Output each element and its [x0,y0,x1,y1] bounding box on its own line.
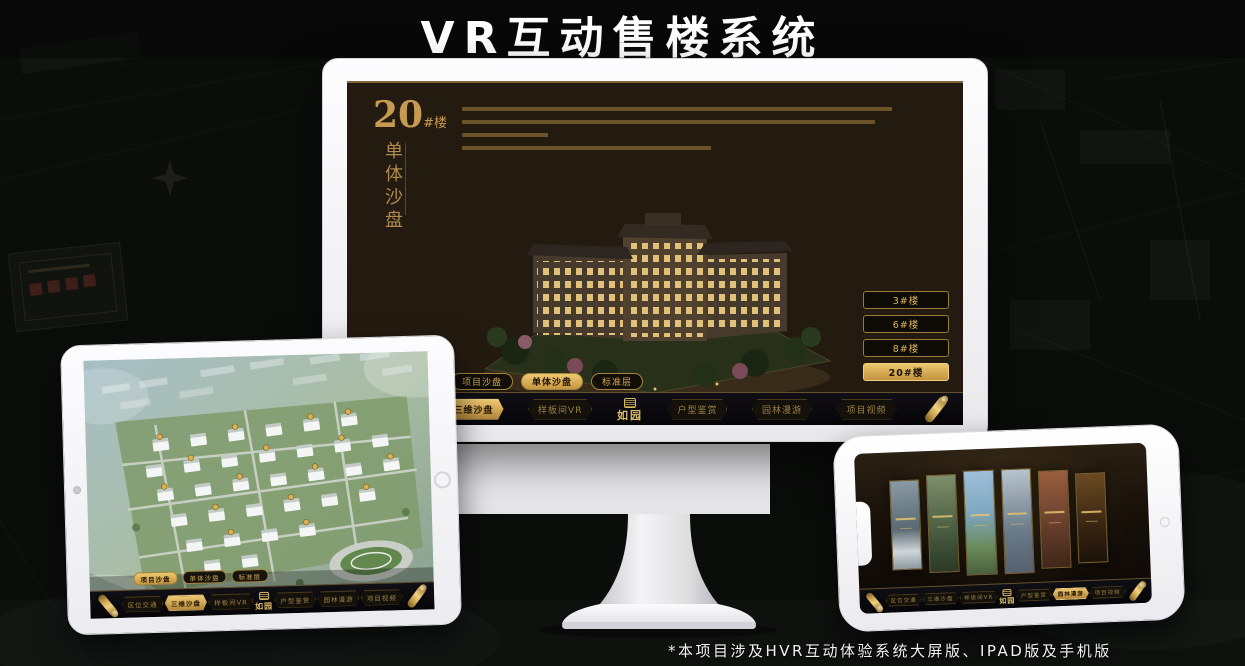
promo-canvas: VR互动售楼系统 20#楼 单体沙盘 [0,0,1245,666]
tablet-tab-project-sandbox[interactable]: 项目沙盘 [133,571,177,585]
tablet-nav-project-video[interactable]: 项目视频 [361,589,403,606]
building-number: 20#楼 [373,97,447,133]
nav-item-garden-roam[interactable]: 园林漫游 [752,399,812,420]
footnote-text: *本项目涉及HVR互动体验系统大屏版、IPAD版及手机版 [668,640,1112,661]
phone-nav-bar: 区位交通 三维沙盘 样板间VR 如园 户型鉴赏 园林漫游 项目视频 [859,578,1152,614]
desktop-view-tabs: 项目沙盘 单体沙盘 标准层 [451,373,643,390]
tablet-nav-floorplans[interactable]: 户型鉴赏 [274,591,316,608]
scene-card-5[interactable] [1038,470,1072,569]
tablet-tab-standard-floor[interactable]: 标准层 [231,569,268,583]
tablet-nav-location[interactable]: 区位交通 [121,595,163,612]
monitor-stand [450,444,780,644]
building-button-20[interactable]: 20#楼 [863,363,949,381]
subtitle-divider [405,143,406,215]
phone-scroll-ornament-right-icon[interactable] [1128,581,1146,602]
scene-card-2[interactable] [926,474,960,573]
scene-card-4[interactable] [1000,468,1034,574]
phone-scroll-ornament-left-icon[interactable] [865,591,884,612]
phone-device: 区位交通 三维沙盘 样板间VR 如园 户型鉴赏 园林漫游 项目视频 [832,423,1185,632]
tablet-tab-single-sandbox[interactable]: 单体沙盘 [182,570,226,584]
logo-seal-icon [624,398,636,408]
tablet-home-button[interactable] [434,471,451,488]
phone-screen: 区位交通 三维沙盘 样板间VR 如园 户型鉴赏 园林漫游 项目视频 [854,443,1152,614]
building-button-6[interactable]: 6#楼 [863,315,949,333]
tablet-brand-logo: 如园 [255,591,273,609]
phone-nav-showroom-vr[interactable]: 样板间VR [959,590,999,603]
phone-nav-location[interactable]: 区位交通 [885,593,921,606]
plaque-decoration [8,242,128,331]
scene-card-1[interactable] [889,479,923,570]
scene-gallery [889,464,1109,578]
building-title-block: 20#楼 单体沙盘 [373,97,447,233]
phone-nav-project-video[interactable]: 项目视频 [1089,586,1125,599]
tablet-device: 项目沙盘 单体沙盘 标准层 区位交通 三维沙盘 样板间VR 如园 户型鉴赏 园林… [60,335,462,636]
tablet-nav-3d-sandbox[interactable]: 三维沙盘 [165,594,207,611]
brand-logo: 如园 [617,398,643,421]
phone-nav-floorplans[interactable]: 户型鉴赏 [1016,588,1052,601]
phone-brand-logo: 如园 [999,588,1016,604]
scroll-ornament-icon[interactable] [923,394,949,423]
tab-standard-floor[interactable]: 标准层 [591,373,643,390]
tab-single-sandbox[interactable]: 单体沙盘 [521,373,583,390]
phone-logo-seal-icon [1002,588,1011,595]
tablet-scroll-ornament-right-icon[interactable] [406,584,427,609]
building-rendering [455,151,855,401]
tab-project-sandbox[interactable]: 项目沙盘 [451,373,513,390]
building-button-3[interactable]: 3#楼 [863,291,949,309]
nav-item-floorplans[interactable]: 户型鉴赏 [667,399,727,420]
building-number-suffix: #楼 [423,116,447,131]
phone-nav-garden-roam[interactable]: 园林漫游 [1053,587,1089,600]
tablet-nav-garden-roam[interactable]: 园林漫游 [317,590,359,607]
phone-camera-icon [1160,517,1170,527]
scene-card-3[interactable] [963,469,997,575]
building-selector: 3#楼 6#楼 8#楼 20#楼 [863,291,949,381]
tablet-nav-showroom-vr[interactable]: 样板间VR [208,593,254,610]
nav-item-showroom-vr[interactable]: 样板间VR [528,399,592,420]
phone-notch [856,501,872,565]
tablet-logo-seal-icon [259,591,269,599]
building-subtitle: 单体沙盘 [379,141,405,233]
scene-card-6[interactable] [1075,472,1109,563]
nav-item-project-video[interactable]: 项目视频 [836,399,896,420]
building-button-8[interactable]: 8#楼 [863,339,949,357]
page-title: VR互动售楼系统 [0,2,1245,66]
tablet-screen: 项目沙盘 单体沙盘 标准层 区位交通 三维沙盘 样板间VR 如园 户型鉴赏 园林… [83,351,434,619]
phone-nav-3d-sandbox[interactable]: 三维沙盘 [922,592,958,605]
tablet-camera-icon [73,486,81,494]
tablet-scroll-ornament-left-icon[interactable] [97,593,119,617]
